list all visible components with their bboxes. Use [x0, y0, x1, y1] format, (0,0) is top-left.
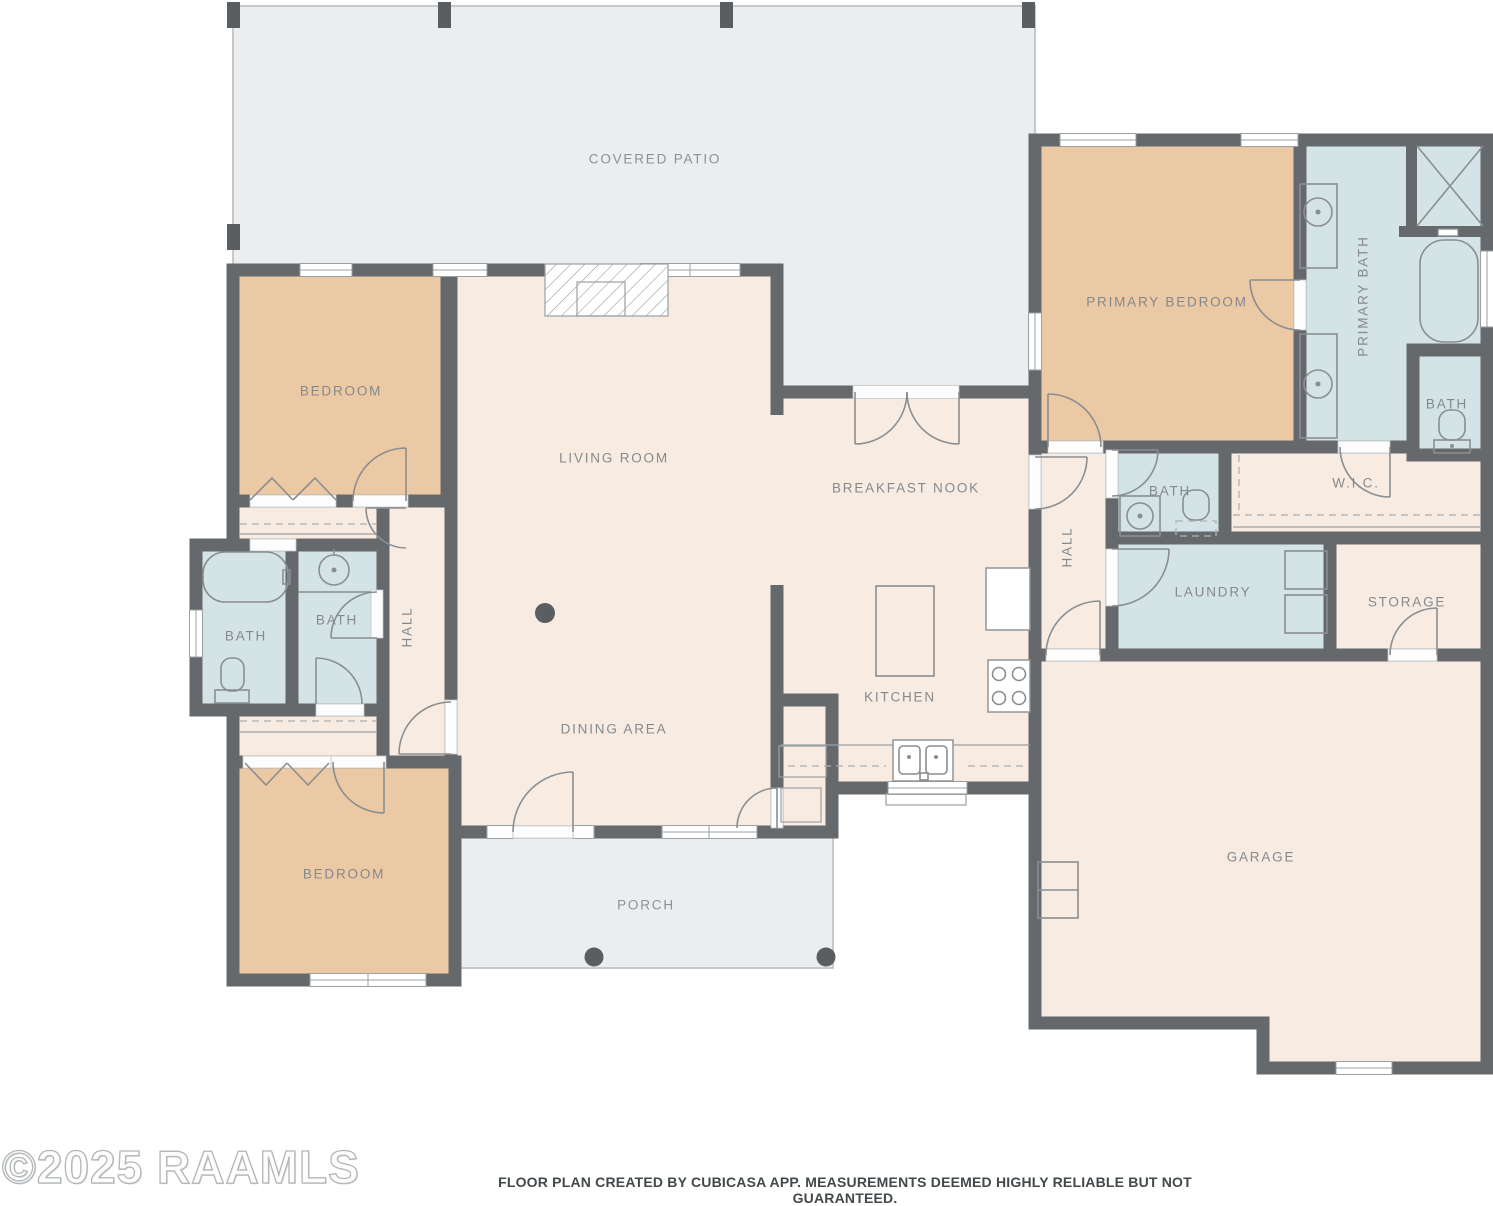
hall-right-label: HALL: [1060, 527, 1075, 568]
primary-wc-label: BATH: [1426, 397, 1468, 412]
hall-left-label: HALL: [400, 607, 415, 648]
bath-inner-label: BATH: [316, 613, 358, 628]
covered-patio-label: COVERED PATIO: [589, 152, 721, 167]
kitchen-sink-icon: [893, 740, 953, 781]
cased-opening: [769, 415, 785, 585]
kitchen-label: KITCHEN: [864, 690, 936, 705]
room-bath-inner: [292, 545, 383, 710]
primary-bedroom-label: PRIMARY BEDROOM: [1086, 295, 1248, 310]
fireplace-icon: [545, 264, 668, 316]
watermark: ©2025 RAAMLS: [2, 1140, 360, 1194]
floor-plan: COVERED PATIO BEDROOM LIVING ROOM DINING…: [0, 0, 1493, 1200]
bedroom-top-label: BEDROOM: [300, 384, 382, 399]
hall-dining-opening: [445, 700, 457, 754]
room-living-dining: [451, 270, 777, 832]
disclaimer-text: FLOOR PLAN CREATED BY CUBICASA APP. MEAS…: [445, 1174, 1245, 1206]
room-bath-left: [196, 545, 292, 710]
hall-bath-label: BATH: [1149, 484, 1191, 499]
bedroom-bottom-label: BEDROOM: [303, 867, 385, 882]
porch-label: PORCH: [617, 898, 675, 913]
stove-icon: [988, 660, 1030, 712]
shower-wall: [1406, 140, 1417, 232]
storage-label: STORAGE: [1368, 595, 1446, 610]
bath-left-label: BATH: [225, 629, 267, 644]
laundry-label: LAUNDRY: [1175, 585, 1252, 600]
breakfast-nook-label: BREAKFAST NOOK: [832, 481, 980, 496]
room-closet-bottom: [233, 710, 383, 762]
living-room-label: LIVING ROOM: [559, 451, 669, 466]
room-hall-left: [383, 501, 451, 762]
primary-bath-label: PRIMARY BATH: [1356, 235, 1371, 356]
ceiling-fan-icon: [535, 603, 555, 623]
kitchen-step: [886, 794, 966, 805]
wic-label: W.I.C.: [1332, 476, 1380, 491]
fridge-icon: [986, 568, 1030, 630]
garage-label: GARAGE: [1227, 850, 1296, 865]
dining-area-label: DINING AREA: [561, 722, 668, 737]
room-closet-top: [233, 501, 383, 545]
